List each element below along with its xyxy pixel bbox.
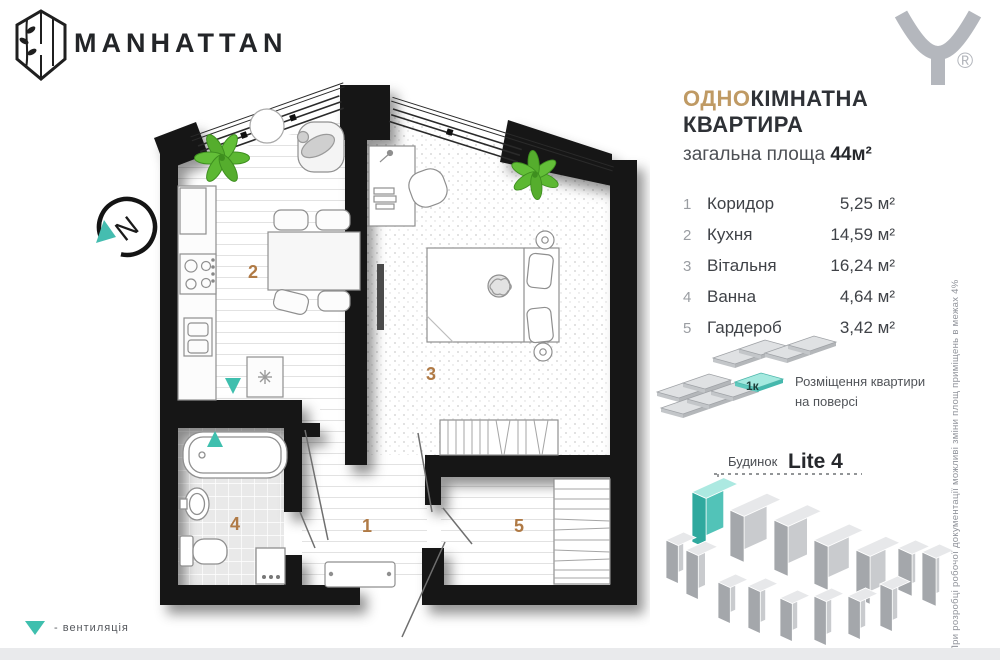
- page: MANHATTAN ® N: [0, 0, 1000, 660]
- page-title: ОДНОКІМНАТНА КВАРТИРА: [683, 86, 983, 138]
- wardrobe-shelves: [554, 479, 610, 584]
- bench: [325, 562, 395, 587]
- pillow: [526, 253, 553, 289]
- total-area: загальна площа 44м²: [683, 144, 983, 166]
- building-label-regular: Будинок: [728, 454, 778, 469]
- toilet-bowl: [193, 539, 227, 564]
- plan-label-kitchen: 2: [248, 262, 258, 282]
- plan-label-bath: 4: [230, 514, 240, 534]
- toilet-tank: [180, 536, 193, 566]
- room-list: 1 Коридор 5,25 м² 2 Кухня 14,59 м² 3 Віт…: [683, 194, 895, 338]
- y-logo-icon: ®: [893, 6, 985, 86]
- placement-badge: 1к: [746, 379, 760, 393]
- disclaimer-text: При розробці робочої документації можлив…: [950, 240, 968, 652]
- placement-caption: Розміщення квартири на поверсі: [795, 372, 925, 412]
- ventilation-legend: - вентиляція: [25, 621, 129, 635]
- stove: [180, 254, 216, 294]
- plan-label-wardrobe: 5: [514, 516, 524, 536]
- building-label-bold: Lite 4: [788, 450, 843, 473]
- brand-shield-icon: [14, 8, 68, 82]
- building-diagram: Будинок Lite 4: [650, 442, 980, 648]
- pillow: [526, 307, 553, 343]
- rug: [250, 109, 284, 143]
- room-row: 3 Вітальня 16,24 м²: [683, 256, 895, 276]
- info-panel: ОДНОКІМНАТНА КВАРТИРА загальна площа 44м…: [683, 86, 983, 338]
- room-row: 2 Кухня 14,59 м²: [683, 225, 895, 245]
- dining-table: [268, 232, 360, 290]
- room-row: 1 Коридор 5,25 м²: [683, 194, 895, 214]
- brand-wordmark: MANHATTAN: [74, 28, 287, 59]
- room-row: 4 Ванна 4,64 м²: [683, 287, 895, 307]
- registered-mark: ®: [957, 48, 973, 73]
- floor-plan: 2 3 4 1 5: [150, 80, 650, 640]
- plan-label-living: 3: [426, 364, 436, 384]
- vent-triangle-icon: [25, 621, 45, 635]
- desk: [369, 146, 415, 226]
- footer-strip: [0, 648, 1000, 660]
- plan-label-corridor: 1: [362, 516, 372, 536]
- title-accent: ОДНО: [683, 86, 751, 111]
- compass-n-label: N: [109, 210, 144, 247]
- vent-legend-label: - вентиляція: [54, 622, 129, 634]
- total-area-value: 44м²: [830, 144, 872, 165]
- tv: [377, 264, 384, 330]
